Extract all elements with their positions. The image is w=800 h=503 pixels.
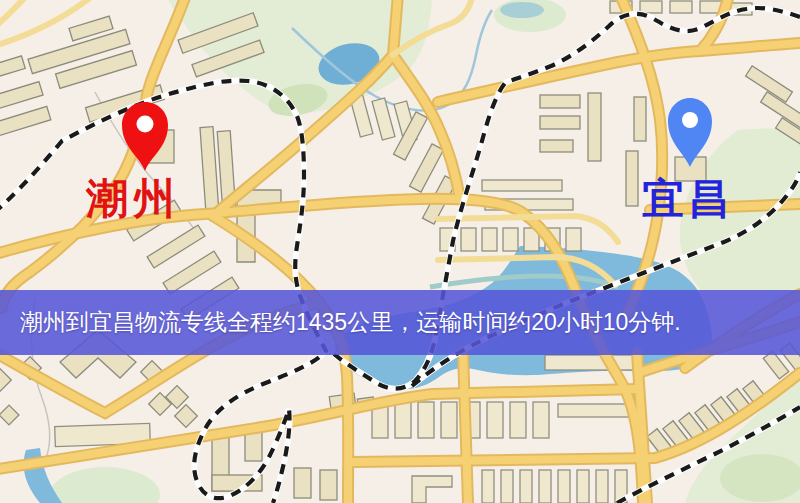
red-pin-hole [137,116,154,133]
blue-pin-hole [682,112,698,128]
route-info-text: 潮州到宜昌物流专线全程约1435公里，运输时间约20小时10分钟. [20,290,681,355]
map-canvas: 潮州 宜昌 潮州到宜昌物流专线全程约1435公里，运输时间约20小时10分钟. [0,0,800,503]
route-info-banner: 潮州到宜昌物流专线全程约1435公里，运输时间约20小时10分钟. [0,290,800,355]
map-graphic [0,0,800,503]
